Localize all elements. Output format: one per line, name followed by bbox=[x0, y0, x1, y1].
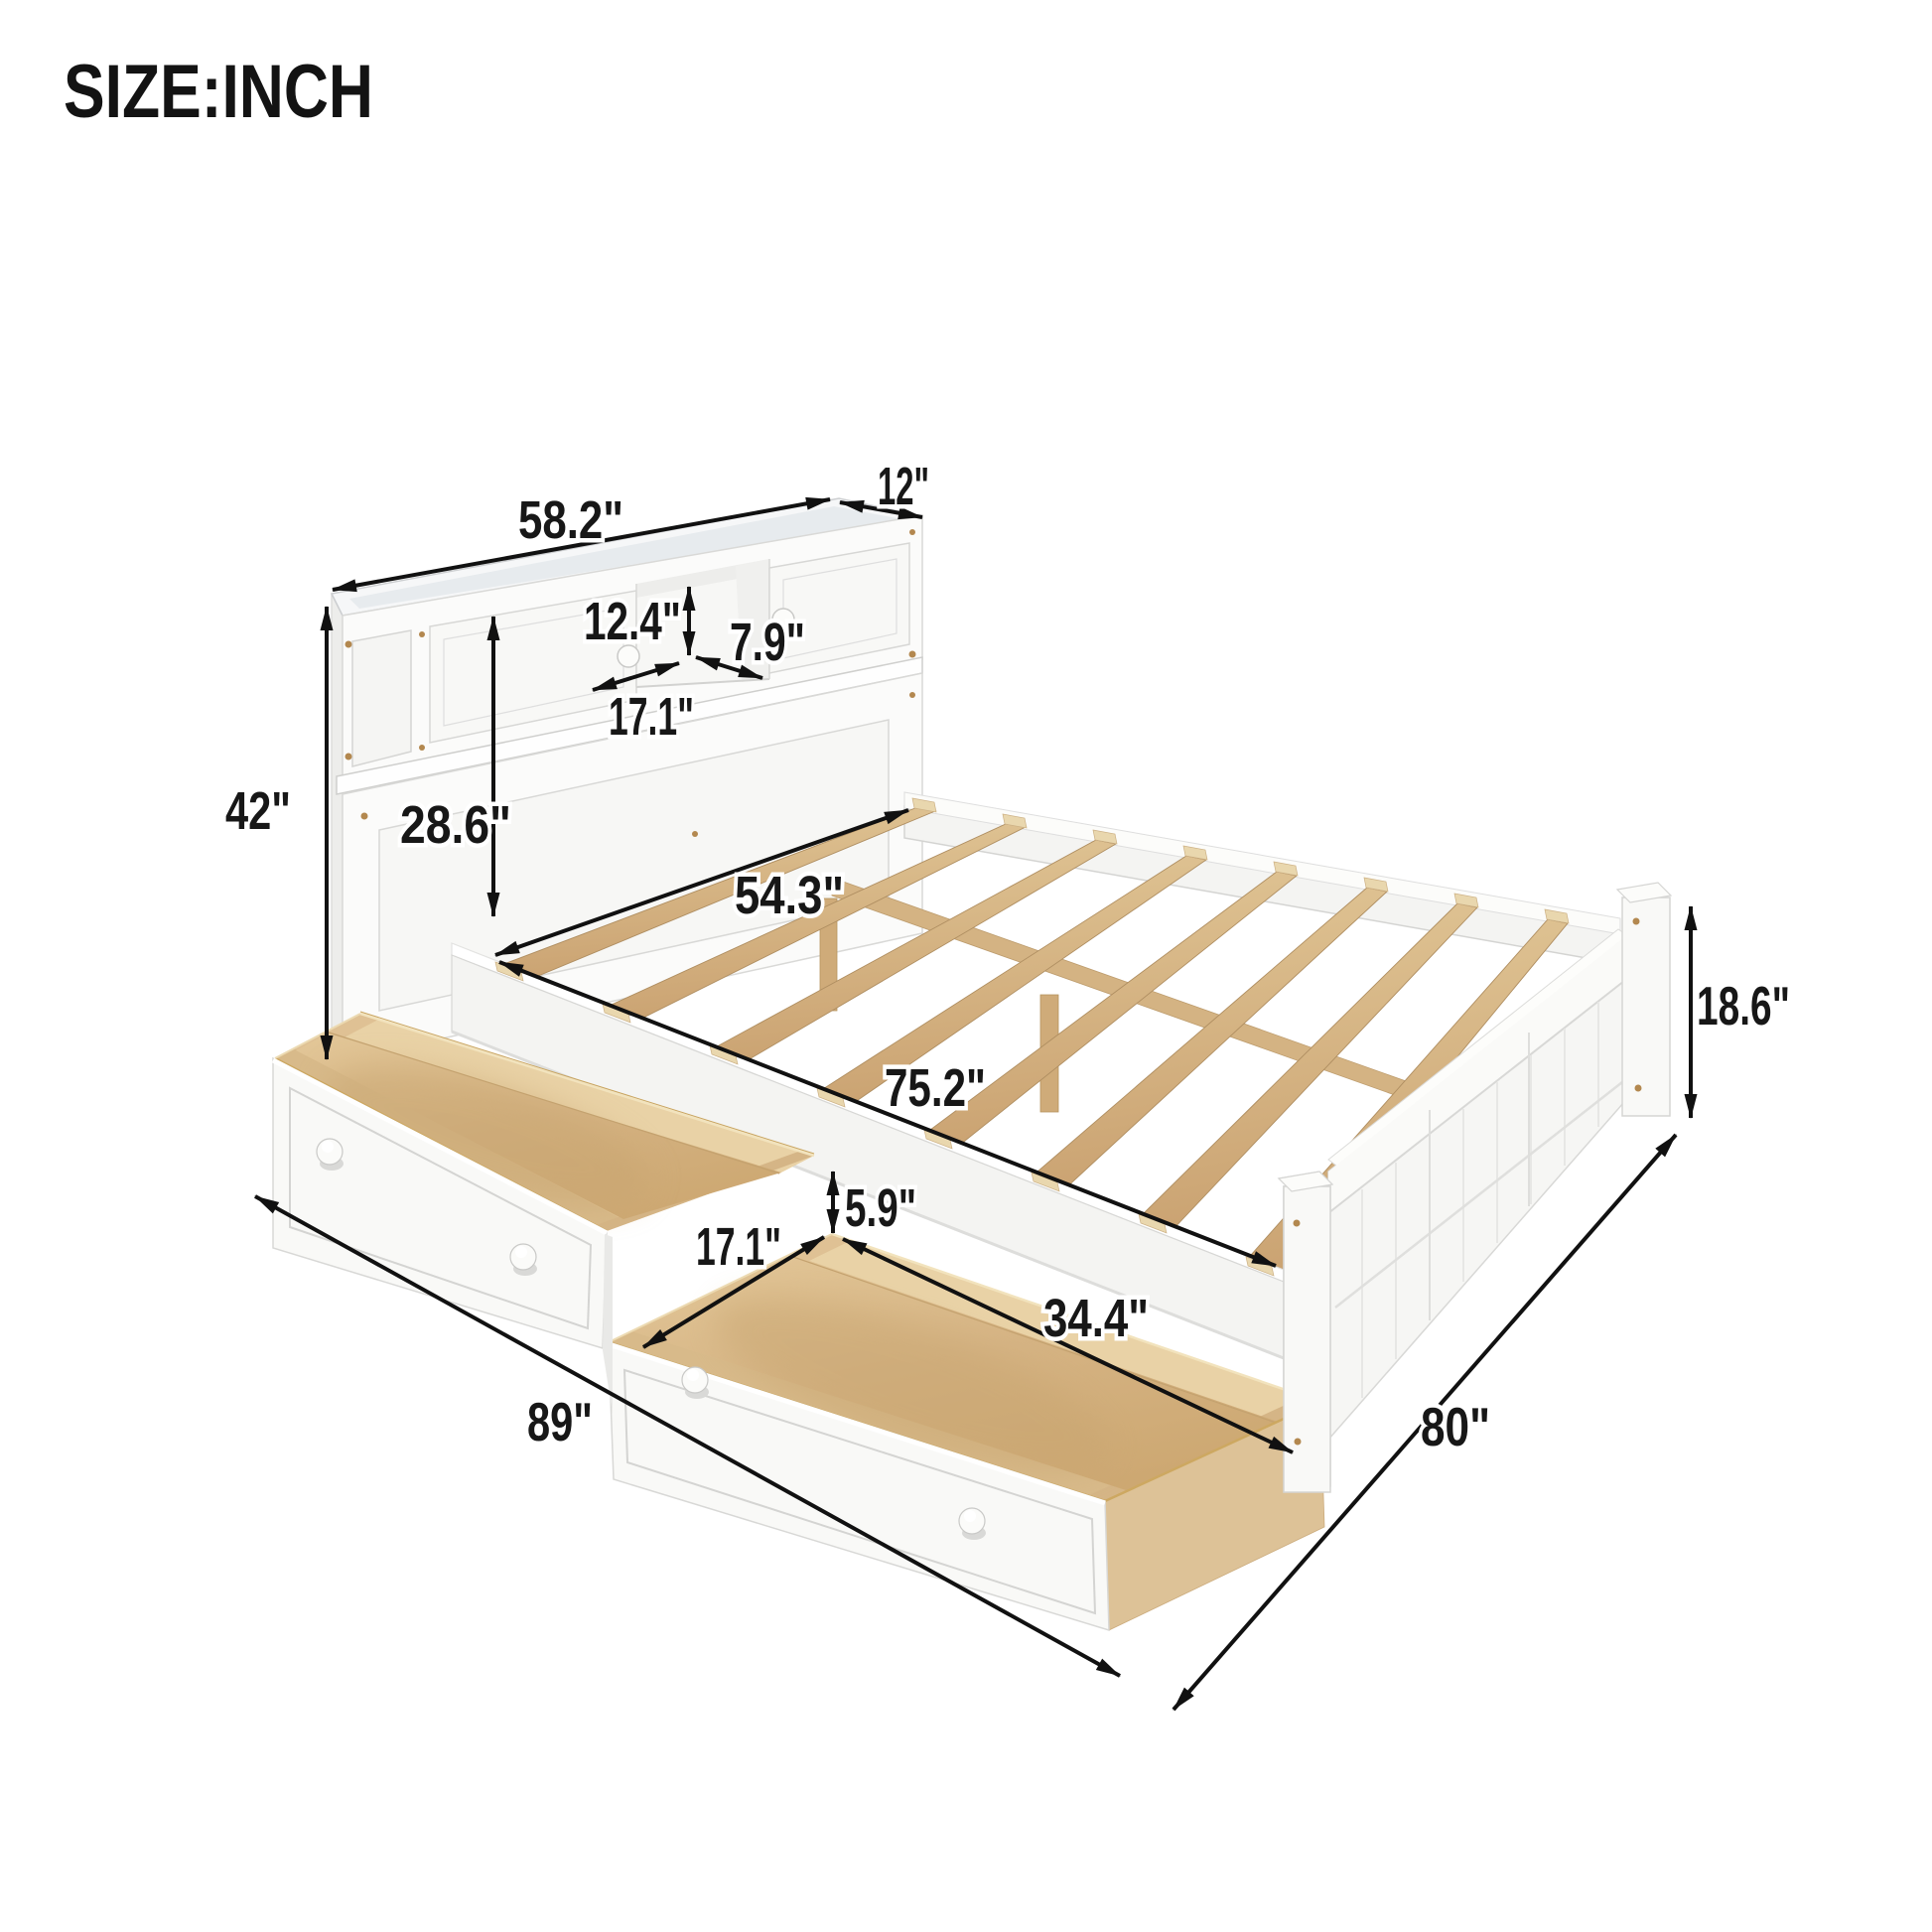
svg-text:75.2": 75.2" bbox=[885, 1058, 986, 1118]
svg-text:7.9": 7.9" bbox=[730, 613, 805, 672]
svg-text:54.3": 54.3" bbox=[735, 866, 844, 925]
svg-text:80": 80" bbox=[1421, 1396, 1490, 1457]
svg-text:17.1": 17.1" bbox=[696, 1217, 781, 1277]
svg-text:18.6": 18.6" bbox=[1697, 975, 1790, 1036]
svg-text:17.1": 17.1" bbox=[609, 687, 694, 747]
svg-text:89": 89" bbox=[527, 1391, 593, 1452]
svg-text:SIZE:INCH: SIZE:INCH bbox=[64, 50, 373, 134]
svg-text:5.9": 5.9" bbox=[845, 1178, 916, 1238]
svg-text:12": 12" bbox=[878, 457, 929, 516]
svg-text:34.4": 34.4" bbox=[1043, 1289, 1149, 1348]
svg-text:58.2": 58.2" bbox=[518, 490, 623, 550]
svg-text:12.4": 12.4" bbox=[584, 592, 681, 651]
svg-text:28.6": 28.6" bbox=[400, 795, 511, 855]
svg-text:42": 42" bbox=[225, 781, 291, 841]
